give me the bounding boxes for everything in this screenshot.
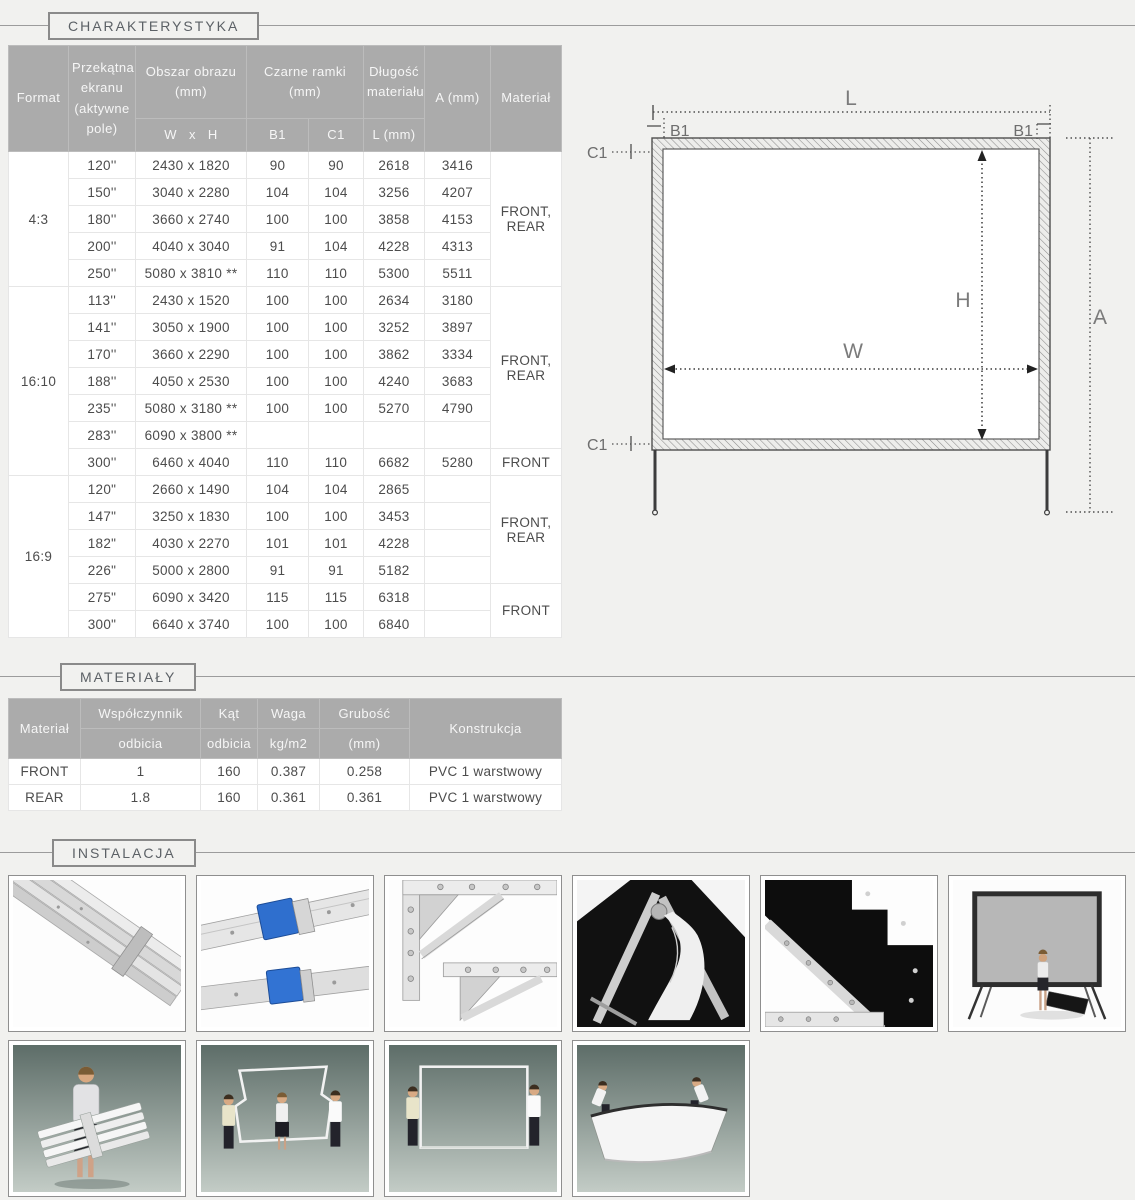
cell-c1: 100	[309, 503, 364, 530]
col-header-format: Format	[9, 46, 69, 152]
cell-diagonal: 200''	[69, 233, 136, 260]
cell-wxh: 5080 x 3180 **	[136, 395, 247, 422]
dim-label-a: A	[1093, 306, 1107, 329]
cell-l: 5300	[364, 260, 425, 287]
cell-b1: 104	[247, 476, 309, 503]
dim-label-l: L	[845, 87, 857, 110]
installation-gallery-row-1	[8, 875, 1126, 1032]
cell-diagonal: 141''	[69, 314, 136, 341]
spec-row: 180'' 3660 x 2740 100 100 3858 4153	[9, 206, 562, 233]
col-header-image-area: Obszar obrazu (mm)	[136, 46, 247, 119]
cell-c1: 104	[309, 476, 364, 503]
cell-b1: 100	[247, 503, 309, 530]
col-subheader-c1: C1	[309, 119, 364, 152]
cell-c1: 104	[309, 233, 364, 260]
mat-col-reflection-top: Współczynnik	[81, 699, 201, 729]
col-header-diagonal: Przekątna ekranu (aktywne pole)	[69, 46, 136, 152]
cell-wxh: 3660 x 2290	[136, 341, 247, 368]
spec-row: 182" 4030 x 2270 101 101 4228	[9, 530, 562, 557]
cell-a	[425, 476, 491, 503]
col-subheader-wxh: W x H	[136, 119, 247, 152]
cell-wxh: 2660 x 1490	[136, 476, 247, 503]
spec-row: 147" 3250 x 1830 100 100 3453	[9, 503, 562, 530]
cell-diagonal: 170''	[69, 341, 136, 368]
material-row: REAR 1.8 160 0.361 0.361 PVC 1 warstwowy	[9, 785, 562, 811]
cell-c1: 101	[309, 530, 364, 557]
person-carrying-folded-frame-photo[interactable]	[8, 1040, 186, 1197]
cell-l: 3858	[364, 206, 425, 233]
frame-corner-braces-photo[interactable]	[384, 875, 562, 1032]
mat-col-thickness-bottom: (mm)	[320, 729, 410, 759]
cell-b1: 91	[247, 557, 309, 584]
spec-row: 250'' 5080 x 3810 ** 110 110 5300 5511	[9, 260, 562, 287]
cell-b1: 100	[247, 341, 309, 368]
dim-label-c1-top: C1	[587, 145, 608, 162]
cell-weight: 0.361	[258, 785, 320, 811]
spec-row: 300'' 6460 x 4040 110 110 6682 5280 FRON…	[9, 449, 562, 476]
cell-a	[425, 530, 491, 557]
cell-a	[425, 503, 491, 530]
cell-wxh: 4050 x 2530	[136, 368, 247, 395]
cell-a: 5280	[425, 449, 491, 476]
frame-hinge-blue-clamps-photo[interactable]	[196, 875, 374, 1032]
cell-a	[425, 557, 491, 584]
cell-a	[425, 422, 491, 449]
materials-table: Materiał Współczynnik Kąt Waga Grubość K…	[8, 698, 562, 811]
cell-wxh: 6090 x 3800 **	[136, 422, 247, 449]
cell-material-name: REAR	[9, 785, 81, 811]
cell-c1: 110	[309, 260, 364, 287]
cell-wxh: 3250 x 1830	[136, 503, 247, 530]
assembled-screen-with-presenter-photo[interactable]	[948, 875, 1126, 1032]
cell-format: 16:10	[9, 287, 69, 476]
cell-b1	[247, 422, 309, 449]
materialy-section-label: MATERIAŁY	[60, 663, 196, 691]
mat-col-thickness-top: Grubość	[320, 699, 410, 729]
cell-l: 3256	[364, 179, 425, 206]
cell-diagonal: 120''	[69, 152, 136, 179]
cell-wxh: 4040 x 3040	[136, 233, 247, 260]
cell-l: 6682	[364, 449, 425, 476]
cell-diagonal: 235''	[69, 395, 136, 422]
spec-row: 150'' 3040 x 2280 104 104 3256 4207	[9, 179, 562, 206]
spec-row: 226" 5000 x 2800 91 91 5182	[9, 557, 562, 584]
cell-l: 4240	[364, 368, 425, 395]
dim-label-w: W	[843, 340, 863, 363]
dim-label-b1-right: B1	[1013, 123, 1033, 140]
cell-material: FRONT, REAR	[491, 152, 562, 287]
product-spec-page: { "sections": { "charakterystyka": { "la…	[0, 0, 1135, 1200]
dim-label-b1-left: B1	[670, 123, 690, 140]
cell-a: 3897	[425, 314, 491, 341]
screen-corner-bracket-photo[interactable]	[760, 875, 938, 1032]
spec-row: 200'' 4040 x 3040 91 104 4228 4313	[9, 233, 562, 260]
cell-a: 3683	[425, 368, 491, 395]
cell-c1: 100	[309, 206, 364, 233]
cell-wxh: 4030 x 2270	[136, 530, 247, 557]
cell-wxh: 6640 x 3740	[136, 611, 247, 638]
cell-b1: 100	[247, 368, 309, 395]
cell-b1: 100	[247, 314, 309, 341]
cell-construction: PVC 1 warstwowy	[410, 785, 562, 811]
cell-material-name: FRONT	[9, 759, 81, 785]
spec-row: 300" 6640 x 3740 100 100 6840	[9, 611, 562, 638]
cell-l: 5270	[364, 395, 425, 422]
col-header-material: Materiał	[491, 46, 562, 152]
cell-l: 3453	[364, 503, 425, 530]
dim-marks-c1	[612, 144, 651, 451]
cell-l	[364, 422, 425, 449]
cell-c1: 100	[309, 395, 364, 422]
cell-c1: 104	[309, 179, 364, 206]
cell-a: 3180	[425, 287, 491, 314]
cell-l: 2865	[364, 476, 425, 503]
cell-b1: 91	[247, 233, 309, 260]
transport-case-screen-fabric-photo[interactable]	[572, 875, 750, 1032]
cell-diagonal: 250''	[69, 260, 136, 287]
mat-col-reflection-bottom: odbicia	[81, 729, 201, 759]
mat-col-angle-top: Kąt	[201, 699, 258, 729]
mat-col-weight-top: Waga	[258, 699, 320, 729]
spec-row: 16:9 120" 2660 x 1490 104 104 2865 FRONT…	[9, 476, 562, 503]
instalacja-section-label: INSTALACJA	[52, 839, 196, 867]
cell-wxh: 2430 x 1820	[136, 152, 247, 179]
cell-c1: 100	[309, 368, 364, 395]
mat-col-angle-bottom: odbicia	[201, 729, 258, 759]
cell-b1: 90	[247, 152, 309, 179]
cell-c1: 115	[309, 584, 364, 611]
cell-material: FRONT, REAR	[491, 287, 562, 449]
cell-diagonal: 180''	[69, 206, 136, 233]
cell-format: 16:9	[9, 476, 69, 638]
cell-diagonal: 300"	[69, 611, 136, 638]
cell-weight: 0.387	[258, 759, 320, 785]
cell-diagonal: 120"	[69, 476, 136, 503]
cell-diagonal: 147"	[69, 503, 136, 530]
cell-l: 3252	[364, 314, 425, 341]
spec-row: 4:3 120'' 2430 x 1820 90 90 2618 3416 FR…	[9, 152, 562, 179]
cell-diagonal: 275"	[69, 584, 136, 611]
col-header-length: Długość materiału	[364, 46, 425, 119]
cell-l: 2634	[364, 287, 425, 314]
cell-material: FRONT	[491, 449, 562, 476]
spec-row: 188'' 4050 x 2530 100 100 4240 3683	[9, 368, 562, 395]
cell-b1: 110	[247, 449, 309, 476]
cell-l: 6318	[364, 584, 425, 611]
cell-a: 4153	[425, 206, 491, 233]
cell-wxh: 3050 x 1900	[136, 314, 247, 341]
cell-c1: 100	[309, 287, 364, 314]
three-people-unfolding-frame-photo[interactable]	[196, 1040, 374, 1197]
cell-l: 6840	[364, 611, 425, 638]
cell-reflection: 1.8	[81, 785, 201, 811]
dim-label-c1-bottom: C1	[587, 437, 608, 454]
cell-diagonal: 300''	[69, 449, 136, 476]
cell-wxh: 6090 x 3420	[136, 584, 247, 611]
mat-col-construction: Konstrukcja	[410, 699, 562, 759]
cell-diagonal: 150''	[69, 179, 136, 206]
cell-material: FRONT, REAR	[491, 476, 562, 584]
cell-wxh: 3040 x 2280	[136, 179, 247, 206]
cell-wxh: 5080 x 3810 **	[136, 260, 247, 287]
cell-l: 4228	[364, 530, 425, 557]
two-people-stretching-fabric-photo[interactable]	[572, 1040, 750, 1197]
cell-wxh: 5000 x 2800	[136, 557, 247, 584]
mat-col-weight-bottom: kg/m2	[258, 729, 320, 759]
material-row: FRONT 1 160 0.387 0.258 PVC 1 warstwowy	[9, 759, 562, 785]
cell-l: 2618	[364, 152, 425, 179]
cell-b1: 104	[247, 179, 309, 206]
dim-marks-b1	[647, 118, 1051, 139]
cell-wxh: 3660 x 2740	[136, 206, 247, 233]
spec-row: 283'' 6090 x 3800 **	[9, 422, 562, 449]
spec-row: 141'' 3050 x 1900 100 100 3252 3897	[9, 314, 562, 341]
cell-c1: 110	[309, 449, 364, 476]
cell-wxh: 6460 x 4040	[136, 449, 247, 476]
mat-col-material: Materiał	[9, 699, 81, 759]
cell-c1: 100	[309, 341, 364, 368]
cell-l: 5182	[364, 557, 425, 584]
cell-diagonal: 113''	[69, 287, 136, 314]
cell-diagonal: 226"	[69, 557, 136, 584]
cell-c1: 90	[309, 152, 364, 179]
cell-a: 3416	[425, 152, 491, 179]
cell-b1: 100	[247, 206, 309, 233]
cell-c1: 100	[309, 314, 364, 341]
cell-c1: 100	[309, 611, 364, 638]
cell-diagonal: 182"	[69, 530, 136, 557]
cell-a: 4313	[425, 233, 491, 260]
cell-angle: 160	[201, 759, 258, 785]
cell-wxh: 2430 x 1520	[136, 287, 247, 314]
cell-a: 4207	[425, 179, 491, 206]
spec-row: 235'' 5080 x 3180 ** 100 100 5270 4790	[9, 395, 562, 422]
col-subheader-b1: B1	[247, 119, 309, 152]
col-header-a: A (mm)	[425, 46, 491, 152]
col-header-black-frames: Czarne ramki (mm)	[247, 46, 364, 119]
cell-a	[425, 584, 491, 611]
cell-a: 5511	[425, 260, 491, 287]
cell-a: 3334	[425, 341, 491, 368]
cell-diagonal: 188''	[69, 368, 136, 395]
cell-angle: 160	[201, 785, 258, 811]
cell-c1	[309, 422, 364, 449]
folded-frame-beams-photo[interactable]	[8, 875, 186, 1032]
screen-legs	[653, 450, 1050, 515]
cell-format: 4:3	[9, 152, 69, 287]
dim-label-h: H	[955, 289, 970, 312]
screen-spec-table: Format Przekątna ekranu (aktywne pole) O…	[8, 45, 562, 638]
col-subheader-l: L (mm)	[364, 119, 425, 152]
cell-c1: 91	[309, 557, 364, 584]
charakterystyka-section-label: CHARAKTERYSTYKA	[48, 12, 259, 40]
cell-diagonal: 283''	[69, 422, 136, 449]
cell-b1: 115	[247, 584, 309, 611]
spec-row: 16:10 113'' 2430 x 1520 100 100 2634 318…	[9, 287, 562, 314]
spec-row: 170'' 3660 x 2290 100 100 3862 3334	[9, 341, 562, 368]
cell-a	[425, 611, 491, 638]
spec-row: 275" 6090 x 3420 115 115 6318 FRONT	[9, 584, 562, 611]
installation-gallery-row-2	[8, 1040, 750, 1197]
cell-thickness: 0.258	[320, 759, 410, 785]
cell-l: 3862	[364, 341, 425, 368]
cell-thickness: 0.361	[320, 785, 410, 811]
cell-b1: 101	[247, 530, 309, 557]
screen-dimension-diagram: L B1 B1 C1 C1 H W A	[585, 60, 1135, 560]
two-people-holding-frame-photo[interactable]	[384, 1040, 562, 1197]
cell-b1: 110	[247, 260, 309, 287]
cell-b1: 100	[247, 287, 309, 314]
cell-b1: 100	[247, 395, 309, 422]
cell-a: 4790	[425, 395, 491, 422]
cell-construction: PVC 1 warstwowy	[410, 759, 562, 785]
cell-l: 4228	[364, 233, 425, 260]
cell-reflection: 1	[81, 759, 201, 785]
cell-b1: 100	[247, 611, 309, 638]
cell-material: FRONT	[491, 584, 562, 638]
